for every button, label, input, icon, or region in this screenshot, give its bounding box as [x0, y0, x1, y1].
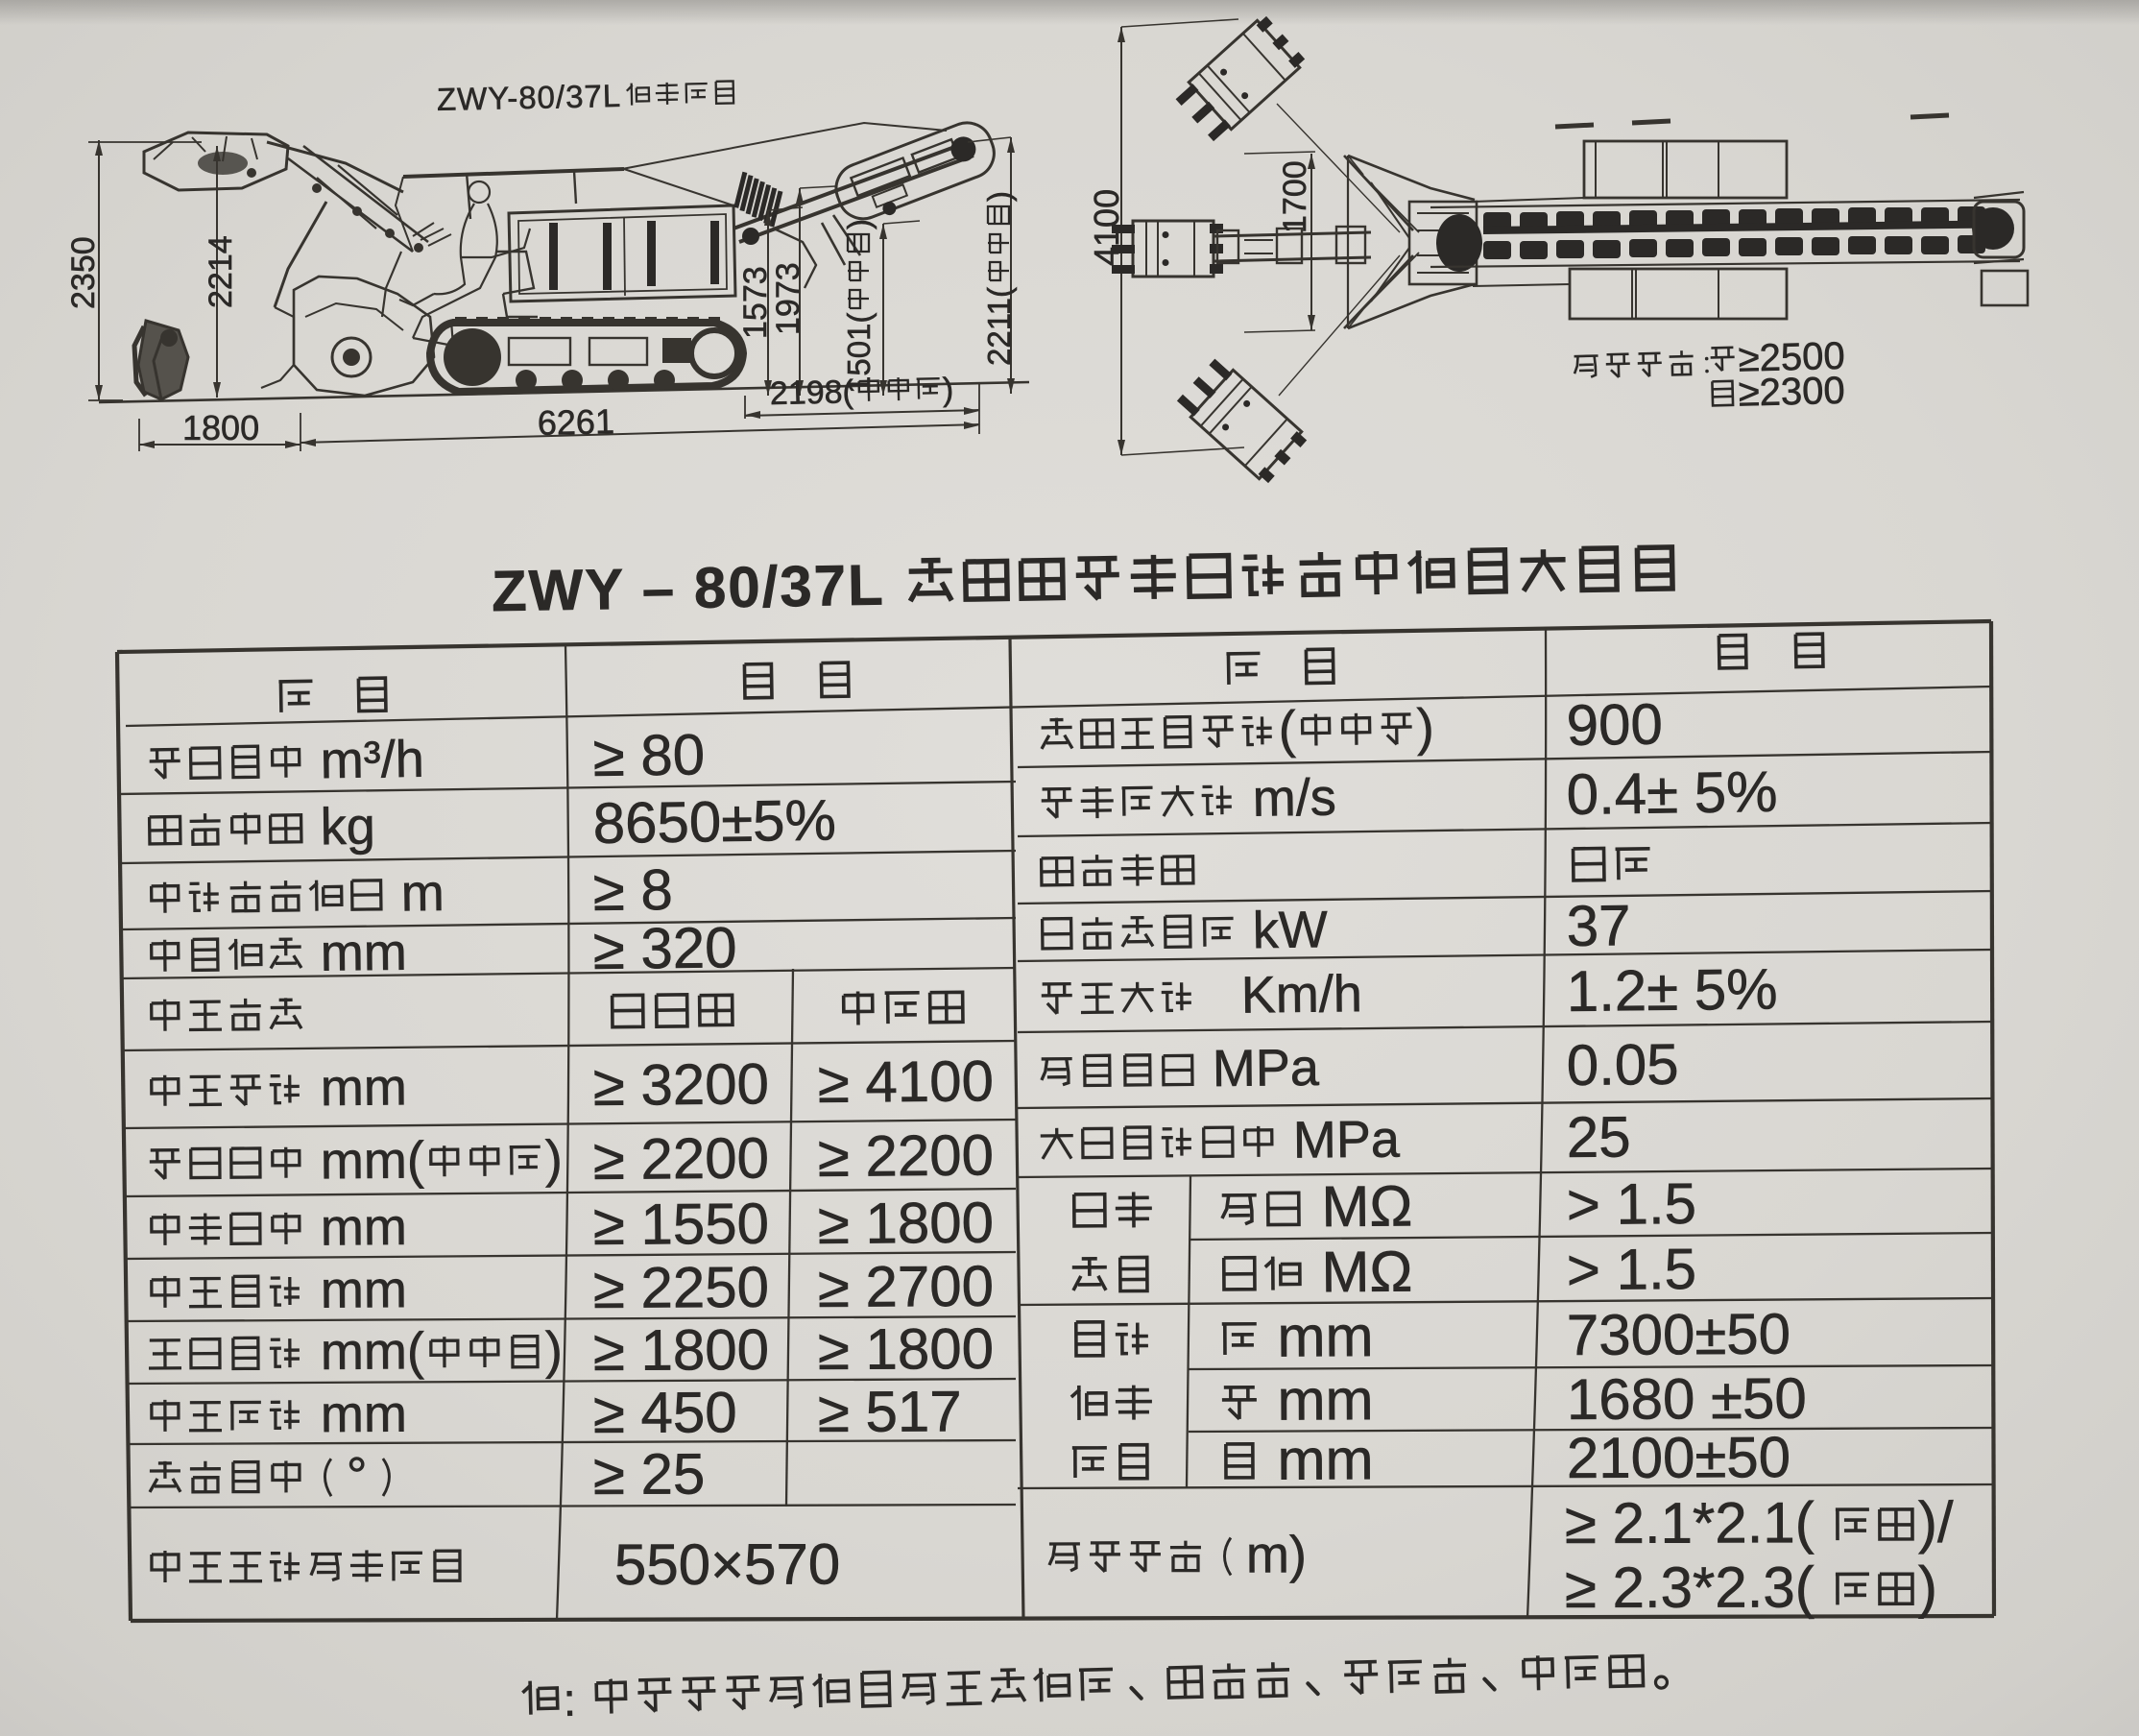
- svg-text:1700: 1700: [1277, 160, 1313, 233]
- svg-text:37: 37: [1566, 893, 1631, 958]
- svg-text:mm: mm: [306, 1058, 408, 1117]
- svg-text:MΩ: MΩ: [1306, 1173, 1413, 1239]
- svg-text:MPa: MPa: [1279, 1111, 1402, 1169]
- svg-text:≥ 2.3*2.3(: ≥ 2.3*2.3(: [1565, 1555, 1831, 1620]
- svg-text:mm(: mm(: [306, 1131, 424, 1190]
- svg-text:0.05: 0.05: [1566, 1032, 1678, 1097]
- svg-text:≥ 2250: ≥ 2250: [593, 1255, 770, 1320]
- svg-text:mm: mm: [1262, 1367, 1374, 1433]
- svg-text:≥ 2200: ≥ 2200: [593, 1125, 770, 1192]
- svg-text:MPa: MPa: [1198, 1039, 1321, 1097]
- svg-text:25: 25: [1567, 1104, 1631, 1169]
- svg-text:): ): [841, 219, 877, 229]
- svg-text:mm: mm: [305, 924, 407, 982]
- svg-text:> 1.5: > 1.5: [1567, 1171, 1697, 1237]
- svg-text:2100±50: 2100±50: [1567, 1425, 1791, 1490]
- svg-text:ZWY-80/37L: ZWY-80/37L: [437, 78, 622, 117]
- svg-text:2350: 2350: [65, 236, 102, 309]
- svg-text:7300±50: 7300±50: [1567, 1302, 1791, 1367]
- svg-text:2214: 2214: [203, 235, 239, 308]
- svg-text:): ): [545, 1321, 563, 1379]
- svg-text:2211(: 2211(: [981, 287, 1017, 366]
- svg-text:): ): [1416, 699, 1434, 757]
- svg-text:mm: mm: [1262, 1427, 1374, 1491]
- svg-text:> 1.5: > 1.5: [1567, 1237, 1697, 1302]
- svg-text:≥ 2200: ≥ 2200: [818, 1122, 995, 1189]
- svg-text:≥ 3200: ≥ 3200: [592, 1051, 769, 1118]
- svg-text:≥ 25: ≥ 25: [593, 1442, 706, 1507]
- svg-text:m: m: [386, 864, 445, 923]
- svg-text:m³/h: m³/h: [305, 731, 424, 790]
- svg-text::: :: [563, 1675, 589, 1726]
- svg-text:≥ 1550: ≥ 1550: [593, 1192, 770, 1257]
- svg-text:≥ 1800: ≥ 1800: [818, 1191, 995, 1256]
- svg-text:mm: mm: [306, 1198, 407, 1257]
- svg-text:≥2300: ≥2300: [1738, 370, 1845, 415]
- svg-text:0.4± 5%: 0.4± 5%: [1566, 759, 1778, 827]
- svg-text:6261: 6261: [537, 401, 614, 443]
- svg-text:ZWY – 80/37L: ZWY – 80/37L: [491, 552, 901, 623]
- svg-text:MΩ: MΩ: [1306, 1240, 1413, 1305]
- svg-text:kg: kg: [305, 798, 375, 856]
- svg-text:≥ 2.1*2.1(: ≥ 2.1*2.1(: [1565, 1490, 1831, 1555]
- svg-text:1573: 1573: [737, 266, 774, 339]
- svg-text:mm: mm: [1262, 1304, 1374, 1369]
- svg-text:≥ 1800: ≥ 1800: [593, 1317, 769, 1383]
- svg-text:≥ 1800: ≥ 1800: [818, 1316, 994, 1382]
- svg-text:m/s: m/s: [1238, 768, 1336, 827]
- svg-text:mm: mm: [306, 1386, 407, 1444]
- svg-text:550×570: 550×570: [614, 1531, 840, 1597]
- svg-text:≥ 8: ≥ 8: [592, 857, 673, 923]
- svg-text:≥ 4100: ≥ 4100: [817, 1049, 994, 1115]
- svg-text:2198(: 2198(: [770, 374, 854, 412]
- svg-text:mm(: mm(: [306, 1322, 424, 1381]
- svg-text:1680 ±50: 1680 ±50: [1567, 1366, 1807, 1432]
- svg-text:Km/h: Km/h: [1197, 965, 1362, 1025]
- svg-text:≥ 517: ≥ 517: [818, 1379, 962, 1444]
- svg-text:≥ 80: ≥ 80: [592, 722, 705, 788]
- svg-text:mm: mm: [306, 1261, 407, 1319]
- svg-text:≥ 2700: ≥ 2700: [818, 1254, 995, 1319]
- svg-text:≥ 450: ≥ 450: [593, 1380, 737, 1445]
- svg-text:): ): [942, 372, 953, 408]
- svg-text:≥ 320: ≥ 320: [592, 915, 737, 981]
- svg-text:kW: kW: [1238, 901, 1328, 959]
- svg-text:°: °: [347, 1447, 368, 1505]
- svg-text:8650±5%: 8650±5%: [592, 787, 836, 856]
- svg-text:)/: )/: [1918, 1490, 1954, 1555]
- svg-text:): ): [1918, 1555, 1937, 1619]
- svg-text:): ): [545, 1130, 564, 1188]
- svg-text:900: 900: [1566, 691, 1663, 758]
- svg-text:1.2± 5%: 1.2± 5%: [1566, 957, 1777, 1024]
- svg-text:1800: 1800: [182, 408, 259, 447]
- svg-text:1973: 1973: [770, 262, 806, 335]
- svg-text:): ): [981, 191, 1017, 202]
- svg-text:m): m): [1246, 1526, 1307, 1583]
- svg-text:(: (: [1278, 701, 1296, 759]
